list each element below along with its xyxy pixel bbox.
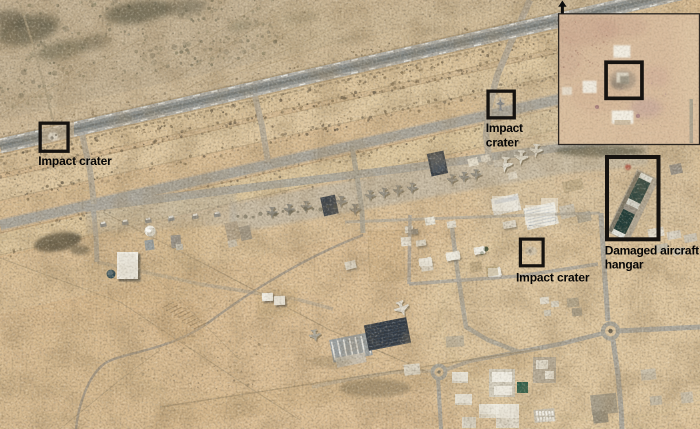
svg-text:Impact crater: Impact crater <box>516 270 590 284</box>
svg-text:crater: crater <box>486 136 519 150</box>
svg-text:Damaged aircraft: Damaged aircraft <box>605 243 699 257</box>
svg-text:Impact: Impact <box>486 121 523 135</box>
svg-text:hangar: hangar <box>605 258 644 272</box>
svg-text:Impact crater: Impact crater <box>38 154 112 168</box>
